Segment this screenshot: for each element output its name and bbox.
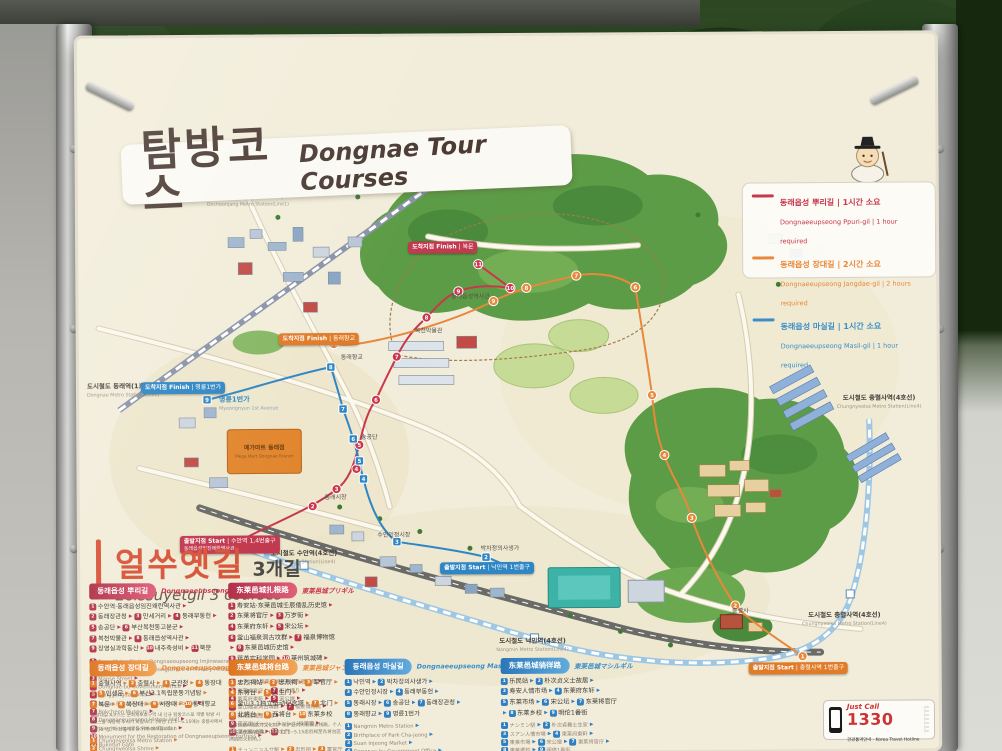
course-stop: 3Suan Injeong Market [345, 741, 407, 747]
title-korean: 탐방코스 [140, 124, 288, 218]
course-stop: 9明伦1番街 [550, 709, 588, 716]
ppuri-line-swatch [752, 194, 774, 197]
course-stop: 5人生门 [264, 690, 291, 697]
svg-text:3: 3 [395, 540, 399, 546]
course-block-masil-ko: 동래읍성 마실길 Dongnaeeupseong Masil-gil 1낙민역▶… [345, 658, 468, 751]
course-stop: 1낙민역 [345, 678, 371, 685]
top-metal-bar [0, 0, 700, 26]
svg-text:11: 11 [474, 262, 482, 268]
poi-suan-market: 수안인정시장 [377, 531, 411, 539]
jangdae-stops-en: 1Chungnyeolsa Metro Station▶2Chungnyeols… [90, 737, 223, 751]
svg-text:9: 9 [492, 299, 496, 305]
svg-text:5: 5 [650, 393, 654, 399]
svg-text:5: 5 [357, 459, 361, 465]
course-stop: 9서장대 [151, 701, 177, 708]
course-stop: 7東莱将官庁 [570, 739, 604, 745]
jangdae-line-swatch [752, 256, 774, 259]
heading-accent-bar [96, 539, 101, 585]
course-count: 3개길 [252, 554, 300, 581]
jangdae-stops-zh: 1忠烈祠站▶2忠烈祠▶3军官厅▶4东将台▶5人生门▶6釜山3.1独立运动纪念塔▶… [229, 678, 345, 722]
course-stop: 2충렬사 [129, 680, 155, 687]
svg-text:Chungnyeolsa Metro Station(Lin: Chungnyeolsa Metro Station(Line4) [802, 621, 887, 628]
svg-text:4: 4 [355, 467, 359, 473]
course-stop: 4东将台 [229, 690, 256, 697]
course-stop: 6釜山福泉洞古坟群 [228, 634, 287, 641]
course-stop: 1乐民站 [501, 677, 528, 684]
course-stop: 8북장대 [118, 701, 144, 708]
hotline-caption: 관광통역안내 · Korea Travel Hotline [847, 737, 919, 742]
jangdae-note-ko: ※ 장대길 A코스는 문화재보호구역 내 신규 탐방코스로 개별 탐방 시 A코… [90, 713, 223, 734]
ppuri-stops-ko: 1수안역·동래읍성임진왜란역사관▶2동래장관청▶3만세거리▶4동래부동헌▶5송공… [89, 601, 222, 655]
svg-text:6: 6 [351, 437, 355, 443]
course-stop: 4东莱府东轩 [555, 688, 595, 695]
course-stop: 11북문 [191, 645, 211, 652]
course-stop: 6宋公坛 [542, 699, 569, 706]
masil-header-ko: 동래읍성 마실길 [345, 659, 412, 675]
masil-stops-en: 1Nangmin Metro Station▶2Birthplace of Pa… [345, 723, 467, 751]
course-stop: 2Chungnyeolsa Shrine [90, 746, 154, 751]
svg-text:Nangmin Metro Station(Line4): Nangmin Metro Station(Line4) [496, 647, 568, 653]
course-stop: 5宋公坛 [276, 623, 303, 630]
course-stop: 7东莱将官厅 [577, 698, 617, 705]
poi-megamart: 메가마트 동래점 [244, 443, 285, 451]
poi-songgongdan: 송공단 [361, 433, 378, 441]
poi-history-hall: 동래읍성역사관 [451, 292, 490, 300]
masil-stops-zh: 1乐民站▶2朴次贞义士故居▶3寿安人情市场▶4东莱府东轩▶5东莱市场▶6宋公坛▶… [501, 676, 621, 720]
svg-text:8: 8 [329, 365, 333, 371]
course-stop: 9장영실과학동산 [90, 646, 139, 653]
course-stop: 4东莱府东轩 [228, 623, 268, 630]
svg-text:7: 7 [574, 274, 578, 280]
svg-text:Chungnyeolsa Metro Station(Lin: Chungnyeolsa Metro Station(Line4) [837, 403, 922, 410]
title-english: Dongnae Tour Courses [298, 127, 552, 196]
course-stop: 3軍官庁 [318, 748, 342, 751]
course-stop: 3寿安人情市场 [501, 688, 547, 695]
poi-hyanggyo: 동래향교 [341, 353, 364, 361]
course-block-jangdae-zhja: 东莱邑城将台路 東莱邑城ジャンデギル 1忠烈祠站▶2忠烈祠▶3军官厅▶4东将台▶… [229, 659, 346, 751]
svg-text:9: 9 [205, 398, 209, 404]
course-stop: 1충렬사역 [90, 680, 122, 687]
travel-hotline-card: Just Call 1330 관광통역안내 · Korea Travel Hot… [823, 699, 935, 740]
course-stop: 3万岁街 [276, 612, 303, 619]
course-stop: 2东莱将官厅 [228, 613, 268, 620]
phone-icon [829, 707, 842, 733]
course-stop: 10东莱乡校 [299, 711, 333, 718]
svg-text:8: 8 [425, 315, 429, 321]
poi-bokcheon-museum: 복천박물관 [415, 326, 443, 334]
course-stop: 2Birthplace of Park Cha-jeong [345, 732, 427, 739]
station-label-nangmin: 도시철도 낙민역(4호선) [499, 636, 566, 645]
course-stop: 5인생문 [97, 691, 123, 698]
course-stop: 3만세거리 [134, 613, 166, 620]
station-label-chungnyeolsa-2: 도시철도 충렬사역(4호선) [808, 610, 881, 619]
finish-pin-jangdae: 도착지점 Finish | 동래향교 [279, 333, 360, 345]
course-stop: 6부산3.1독립운동기념탑 [131, 690, 202, 697]
course-stop: 10내주축성비 [146, 645, 184, 652]
svg-text:4: 4 [662, 453, 666, 459]
course-stop: 1Chungnyeolsa Metro Station [90, 738, 172, 745]
legend-item-jangdae: 동래읍성 장대길 | 2시간 소요 Dongnaeeupseong Jangda… [752, 251, 926, 309]
course-block-masil-zhja: 东莱邑城徜徉路 東莱邑城マシルギル 1乐民站▶2朴次贞义士故居▶3寿安人情市场▶… [501, 657, 622, 751]
course-stop: 6釜山3.1独立运动纪念塔 [229, 700, 304, 707]
svg-text:4: 4 [362, 477, 366, 483]
course-stop: 8东莱乡校 [508, 709, 542, 716]
course-stop: 2朴次贞义士故居 [536, 677, 589, 684]
course-stop: 6부산복천동고분군 [123, 624, 178, 631]
masil-stops-ja: 1ナンミン駅▶2朴次貞義士生家▶3スアン人情市場▶4東莱府東軒▶5東莱市場▶6宋… [501, 722, 621, 751]
ppuri-header-ko: 동래읍성 뿌리길 [89, 583, 156, 599]
start-pin-jangdae: 출발지점 Start | 충렬사역 1번출구 [749, 662, 849, 674]
course-stop: 1忠烈祠站 [229, 679, 263, 686]
jangdae-stops-ja: 1チュンニョルサ駅▶2忠烈祠▶3軍官庁▶4東将台▶5人生門▶6釜山3.1独立運動… [229, 746, 345, 751]
course-stop: 6송공단 [384, 700, 410, 707]
masil-stops-ko: 1낙민역▶2박차정의사생가▶3수안인정시장▶4동래부동헌▶5동래시장▶6송공단▶… [345, 677, 467, 721]
course-stop: 2忠烈祠 [270, 679, 297, 686]
svg-text:Mega Mart Dongnae Branch: Mega Mart Dongnae Branch [235, 453, 294, 458]
course-stop: 5동래시장 [345, 700, 377, 707]
jangdae-note-zh: ※将台路A线路为文化财产保护区内的新探访线路，个人游客请使用A线路。(每年11.… [229, 723, 345, 744]
course-stop: 7복천박물관 [89, 635, 127, 642]
poi-dongnae-market: 동래시장 [325, 493, 348, 501]
course-stop: 5東莱市場 [501, 740, 530, 746]
course-stop: 10동래향교 [184, 701, 216, 708]
poi-chungnyeolsa: 충렬사 [732, 607, 749, 615]
svg-text:2: 2 [484, 555, 488, 561]
course-stop: 3수안인정시장 [345, 689, 388, 696]
masil-line-swatch [753, 318, 775, 321]
course-stop: 1Nangmin Metro Station [345, 724, 414, 730]
course-stop: 4동장대 [196, 679, 222, 686]
finish-pin-masil: 도착지점 Finish | 명륜1번가 [141, 382, 225, 394]
course-stop: 7동래장관청 [418, 699, 456, 706]
course-stop: 2朴次貞義士生家 [543, 723, 588, 729]
svg-text:6: 6 [374, 398, 378, 404]
fine-print [924, 706, 929, 732]
jangdae-header-zh: 东莱邑城将台路 [229, 659, 298, 675]
mascot-character [837, 134, 895, 184]
course-stop: 2동래장관청 [89, 614, 127, 621]
svg-text:7: 7 [341, 407, 345, 413]
right-background [956, 0, 1002, 751]
svg-text:3: 3 [690, 516, 694, 522]
poi-myeongnyun: 명륜1번가 [219, 395, 250, 404]
svg-text:7: 7 [395, 355, 399, 361]
course-stop: 7北门 [312, 700, 333, 707]
svg-text:10: 10 [507, 286, 515, 292]
masil-header-zh: 东莱邑城徜徉路 [501, 658, 570, 674]
course-stop: 6宋公壇 [538, 740, 562, 746]
course-stop: 3军官厅 [305, 679, 332, 686]
svg-text:1: 1 [801, 654, 805, 660]
course-stop: 8东莱邑城历史馆 [236, 645, 289, 652]
course-stop: 3スアン人情市場 [501, 731, 546, 737]
legend-item-ppuri: 동래읍성 뿌리길 | 1시간 소요 Dongnaeeupseong Ppuri-… [752, 189, 926, 247]
jangdae-stops-ko: 1충렬사역▶2충렬사▶3군관청▶4동장대▶5인생문▶6부산3.1독립운동기념탑▶… [90, 678, 223, 711]
poi-birthplace: 박차정의사생가 [481, 544, 520, 552]
course-stop: 4동래부동헌 [174, 613, 212, 620]
course-stop: 5송공단 [89, 624, 115, 631]
hotline-number: 1330 [847, 710, 894, 729]
course-stop: 1寿安站·东莱邑城壬辰倭乱历史馆 [228, 602, 327, 610]
svg-text:3: 3 [335, 487, 339, 493]
course-stop: 1ナンミン駅 [501, 723, 535, 729]
course-stop: 1수안역·동래읍성임진왜란역사관 [89, 603, 181, 611]
station-label-chungnyeolsa-1: 도시철도 충렬사역(4호선) [843, 393, 916, 402]
course-stop: 7福泉博物馆 [295, 634, 335, 641]
ppuri-header-zh: 东莱邑城扎根路 [228, 582, 297, 598]
course-stop: 3군관청 [162, 679, 188, 686]
course-stop: 4동래부동헌 [396, 689, 434, 696]
course-stop: 4東莱府東軒 [553, 731, 587, 737]
course-stop: 8北将台 [229, 711, 256, 718]
jangdae-header-ko: 동래읍성 장대길 [90, 660, 157, 676]
svg-text:2: 2 [311, 504, 315, 510]
course-block-jangdae-ko: 동래읍성 장대길 Dongnaeeupseong Jangdae-gil 1충렬… [90, 660, 224, 751]
course-stop: 8동래읍성역사관 [134, 635, 183, 642]
svg-text:6: 6 [633, 285, 637, 291]
course-stop: 9西将台 [264, 711, 291, 718]
start-pin-masil: 출발지점 Start | 낙민역 1번출구 [440, 562, 534, 574]
legend-item-masil: 동래읍성 마실길 | 1시간 소요 Dongnaeeupseong Masil-… [753, 313, 927, 371]
svg-text:Myeongnyun 1st Avenue: Myeongnyun 1st Avenue [219, 405, 278, 411]
finish-pin-ppuri: 도착지점 Finish | 북문 [408, 241, 477, 253]
course-stop: 9명륜1번가 [384, 710, 420, 717]
svg-text:5: 5 [357, 443, 361, 449]
eolssuyetgil-korean: 얼쑤옛길 [115, 538, 245, 587]
sign-board: 1234567891011 12345678910 123456789 도시철도… [74, 30, 942, 751]
course-stop: 8동래향교 [345, 710, 377, 717]
route-legend: 동래읍성 뿌리길 | 1시간 소요 Dongnaeeupseong Ppuri-… [742, 181, 937, 278]
svg-text:8: 8 [524, 286, 528, 292]
course-stop: 5东莱市场 [501, 699, 535, 706]
course-stop: 2박차정의사생가 [378, 678, 427, 685]
course-stop: 7북문 [90, 701, 110, 708]
